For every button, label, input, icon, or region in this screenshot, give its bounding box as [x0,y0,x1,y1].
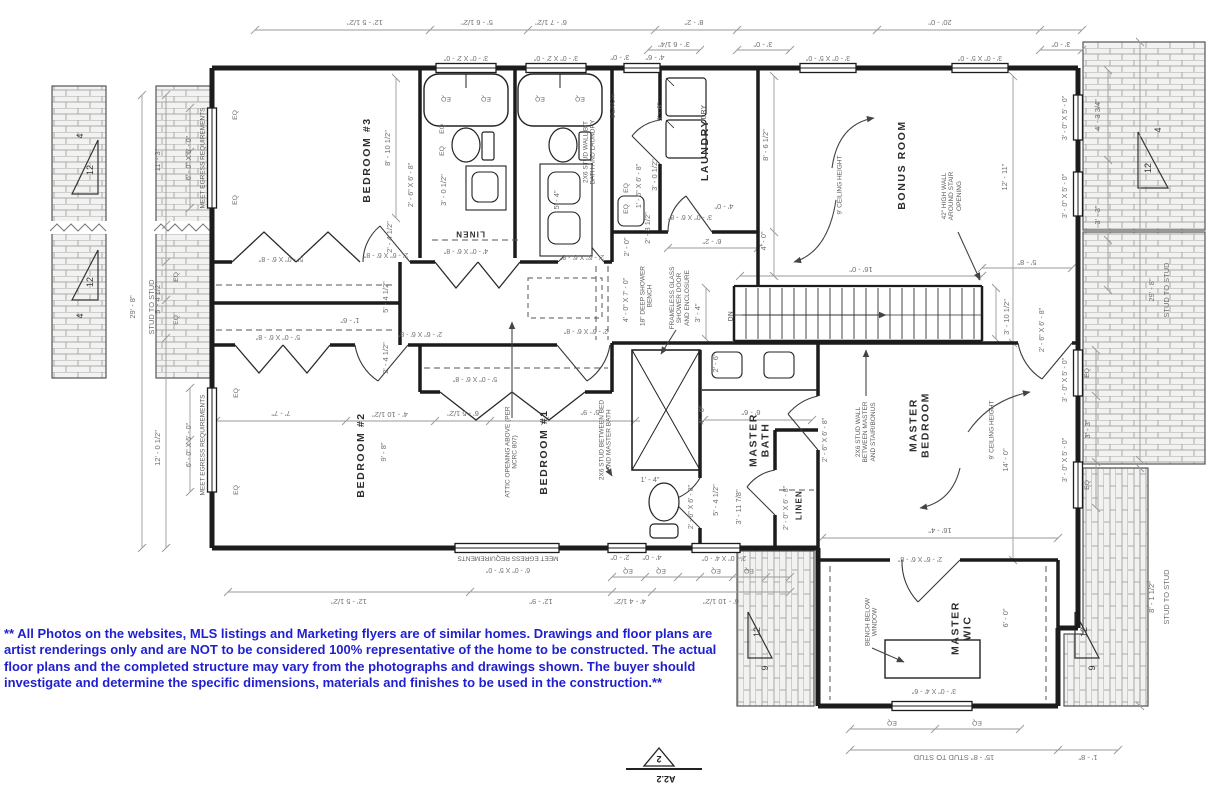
dimension-label: 8' - 6 1/2" [762,129,770,161]
dimension-label: 5' - 9" [580,408,599,416]
note-label: 2X6 STUD WALL B/T BATH AND LAUNDRY [583,120,598,185]
note-label: BENCH BELOW WINDOW [865,598,880,646]
room-label: BONUS ROOM [897,120,909,210]
exterior-walls [212,68,1078,706]
fixture-label: DN [727,311,734,321]
roof-pitch-label: 4 [75,133,85,138]
door-window-size-label: 3' - 0" X 6' - 8" [668,212,712,220]
door-window-size-label: 5' - 0" X 6' - 8" [256,332,300,340]
door-window-size-label: 2' - 6" X 6' - 8" [564,326,608,334]
roof-pitch-label: 12 [85,277,95,287]
dimension-label: 4' - 0" [760,231,768,250]
note-label: FRAMELESS GLASS SHOWER DOOR AND ENCLOSUR… [669,267,691,330]
eq-label: EQ [972,718,982,726]
dimension-label: 4' - 0" [714,202,733,210]
break-mark [50,221,212,234]
note-label: 9' CEILING HEIGHT [988,400,995,459]
eq-label: EQ [887,718,897,726]
eq-label: EQ [441,94,451,102]
dimension-label: 6' - 0" [1002,608,1010,627]
door-window-size-label: 3' - 0" X 5' - 0" [1062,174,1070,218]
dimension-label: 5' - 8" [1017,258,1036,266]
dimension-label: 16' - 0" [849,265,872,273]
eq-label: EQ [173,272,181,282]
dimension-label: 9' - 8" [380,442,388,461]
dimension-label: 3' - 0" [753,40,772,48]
eq-label: EQ [232,110,240,120]
dimension-label: 1' - 8" [1078,753,1097,761]
dimension-label: 8' - 1 1/2" [1148,581,1156,613]
dimension-label: 6' - 10 1/2" [703,597,739,605]
door-window-size-label: 2' - 6" X 6' - 8" [408,163,416,207]
dimension-label: 6' - 5 1/2" [447,409,479,417]
roof-pitch-label: 4 [75,313,85,318]
room-label: LAUNDRY [700,119,712,181]
door-window-size-label: 5' - 0" X 6' - 8" [453,374,497,382]
dimension-label: 2' - 8 1/2" [644,212,652,244]
door-window-size-label: 2' - 6" X 6' - 8" [822,418,830,462]
dimension-label: 3' - 11 7/8" [735,489,743,524]
dimension-label: 4' - 4 1/2" [614,597,646,605]
eq-label: EQ [232,195,240,205]
dimension-label: 4' - 10 1/2" [372,410,408,418]
roof-pitch-label: 9 [760,665,770,670]
note-label: 2X6 STUD WALL BETWEEN MASTER AND STAIR/B… [855,401,877,462]
door-window-size-label: 6' - 0" X 5' - 0" [486,565,530,573]
door-window-size-label: 4' - 0" X 7' - 0" [623,278,631,322]
dimension-label: 2' - 0" [610,553,629,561]
eq-label: EQ [711,566,721,574]
dimension-label: 2' - 0" [623,237,631,256]
dimension-label: 29' - 8" [1148,278,1156,301]
closet-label: LINEN [455,229,485,238]
eq-label: EQ [481,94,491,102]
door-window-size-label: 3' - 0" X 5' - 0" [1062,438,1070,482]
room-label: MASTER BEDROOM [908,392,932,458]
dimension-label: 6' - 7 1/2" [535,18,567,26]
eq-label: EQ [1084,480,1092,490]
door-window-size-label: 3' - 0" X 5' - 0" [1062,358,1070,402]
dimension-label: 15' - 8" STUD TO STUD [914,753,995,761]
section-marker-detail-number: 2 [656,754,661,764]
door-window-size-label: 3' - 0" X 5' - 0" [1062,96,1070,140]
section-marker [626,748,702,769]
fixture-label: BENCH [609,94,616,119]
dimension-label: 7' - 7" [271,409,290,417]
roof-pitch-label: 12 [1079,627,1089,637]
eq-label: EQ [439,124,447,134]
eq-label: EQ [1084,368,1092,378]
closet-label: LINEN [796,490,805,520]
dimension-label: 14' - 0" [1002,448,1010,471]
door-window-size-label: 3' - 0" X 4' - 6" [912,686,956,694]
dimension-label: 3' - 3" [1094,205,1102,224]
roof-pitch-label: 12 [752,627,762,637]
note-label: 18" DEEP SHOWER BENCH [640,266,655,326]
roof-pitch-label: 12 [85,165,95,175]
dimension-label: 29' - 8" [129,295,137,318]
dimension-label: 4' - 0" [698,405,706,424]
door-window-size-label: 2' - 0" X 4' - 0" [702,553,746,561]
eq-label: EQ [575,94,585,102]
dimension-label: 3' - 0" [610,53,629,61]
dimension-label: STUD TO STUD [1163,569,1171,624]
section-marker-sheet-number: A2.2 [656,774,675,784]
dimension-label: 12' - 0 1/2" [154,430,162,466]
dimension-label: 12' - 11" [1001,164,1009,191]
dimension-label: 5' - 4 1/2" [154,282,162,314]
dimension-label: 4' - 3 3/4" [1094,99,1102,131]
dimension-label: 3' - 10 1/2" [1003,299,1011,335]
dimension-label: 2' - 4 1/2" [382,342,390,374]
dimension-label: 8' - 2" [684,18,703,26]
door-window-size-label: 3' - 0" X 2' - 0" [444,53,488,61]
dimension-label: 3' - 0 1/2" [440,174,448,206]
roof-pitch-label: 12 [1143,163,1153,173]
dimension-label: 1' - 4" [640,476,659,484]
dimension-label: 12' - 5 1/2" [347,18,383,26]
eq-label: EQ [233,388,241,398]
dimension-label: 16' - 4" [928,526,951,534]
fixture-label: DRY [700,105,707,120]
dimension-label: 12' - 5 1/2" [331,597,367,605]
dimension-label: 3' - 3" [1084,419,1092,438]
note-label: 42" HIGH WALL AROUND STAIR OPENING [941,172,963,221]
roof-pitch-label: 9 [1087,665,1097,670]
room-label: BEDROOM #2 [356,412,368,497]
dimension-label: 3' - 0" [1051,40,1070,48]
note-label: MEET EGRESS REQUIREMENTS [457,554,558,561]
door-window-size-label: 6' - 0" X 5' - 0" [186,423,194,467]
dimension-label: 5' - 6 1/2" [461,18,493,26]
dimension-label: 12' - 9" [529,597,552,605]
dimension-label: 5' - 4" [553,190,561,209]
dimension-label: STUD TO STUD [1163,262,1171,317]
floor-plan-page: BEDROOM #3BEDROOM #2BEDROOM #1LAUNDRYBON… [0,0,1210,792]
eq-label: EQ [623,183,631,193]
dimension-label: 8' - 10 1/2" [384,130,392,166]
dimension-label: 4' - 0" [642,553,661,561]
door-window-size-label: 1' - 6" X 6' - 8" [636,164,644,208]
dimension-label: 6' - 6" [741,408,760,416]
eq-label: EQ [656,566,666,574]
note-label: ATTIC OPENING ABOVE (PER NCRC 807) [505,406,520,497]
eq-label: EQ [233,485,241,495]
dimension-label: 2' - 4 1/2" [386,221,394,253]
note-label: MEET EGRESS REQUIREMENTS [199,394,206,495]
dimension-label: 3' - 6 1/4" [658,40,690,48]
door-window-size-label: 6' - 0" X 5' - 0" [186,136,194,180]
eq-label: EQ [439,146,447,156]
eq-label: EQ [535,94,545,102]
eq-label: EQ [173,315,181,325]
door-window-size-label: 2' - 6" X 6' - 8" [898,554,942,562]
door-window-size-label: 3' - 0" X 5' - 0" [958,53,1002,61]
door-window-size-label: 3' - 0" X 5' - 0" [806,53,850,61]
dimension-label: 6' - 2" [702,237,721,245]
dimension-label: 11' - 3" [154,149,162,172]
door-window-size-label: 2' - 6" X 6' - 8" [1039,308,1047,352]
eq-label: EQ [623,204,631,214]
door-window-size-label: 3' - 0" X 2' - 0" [534,53,578,61]
dimension-label: 3' - 0 1/2" [651,159,659,191]
dimension-label: 20' - 0" [928,18,951,26]
room-label: MASTER WIC [950,601,974,655]
roof-pitch-label: 4 [1153,127,1163,132]
dimension-label: 1' - 6" [340,316,359,324]
door-window-size-label: 5' - 0" X 6' - 8" [259,254,303,262]
dimension-label: 3' - 4" [694,303,702,322]
dimension-label: 5' - 4 1/2" [712,484,720,516]
note-label: 2X6 STUD BETWEEN BED AND MASTER BATH [599,400,614,480]
eq-label: EQ [623,566,633,574]
disclaimer-text: ** All Photos on the websites, MLS listi… [4,626,718,691]
room-label: BEDROOM #1 [539,409,551,494]
door-window-size-label: 2' - 6" X 6' - 8" [398,329,442,337]
room-label: MASTER BATH [748,413,772,467]
door-window-size-label: 2' - 0" X 6' - 8" [783,486,791,530]
room-label: BEDROOM #3 [362,117,374,202]
dimension-label: 4' - 6" [645,53,664,61]
dimension-label: 5' - 6" [656,102,664,121]
note-label: MEET EGRESS REQUIREMENTS [199,107,206,208]
staircase [734,288,982,339]
door-window-size-label: 2' - 6" X 6' - 8" [560,252,604,260]
dimension-label: 5' - 4 1/2" [382,281,390,313]
door-window-size-label: 4' - 0" X 6' - 8" [444,246,488,254]
door-window-size-label: 2' - 6" X 6' - 8" [688,485,696,529]
brick-hatch [52,42,1205,706]
eq-label: EQ [744,566,754,574]
note-label: 9' CEILING HEIGHT [836,155,843,214]
shower [632,350,700,470]
dimension-label: 2' - 6" [712,353,720,372]
